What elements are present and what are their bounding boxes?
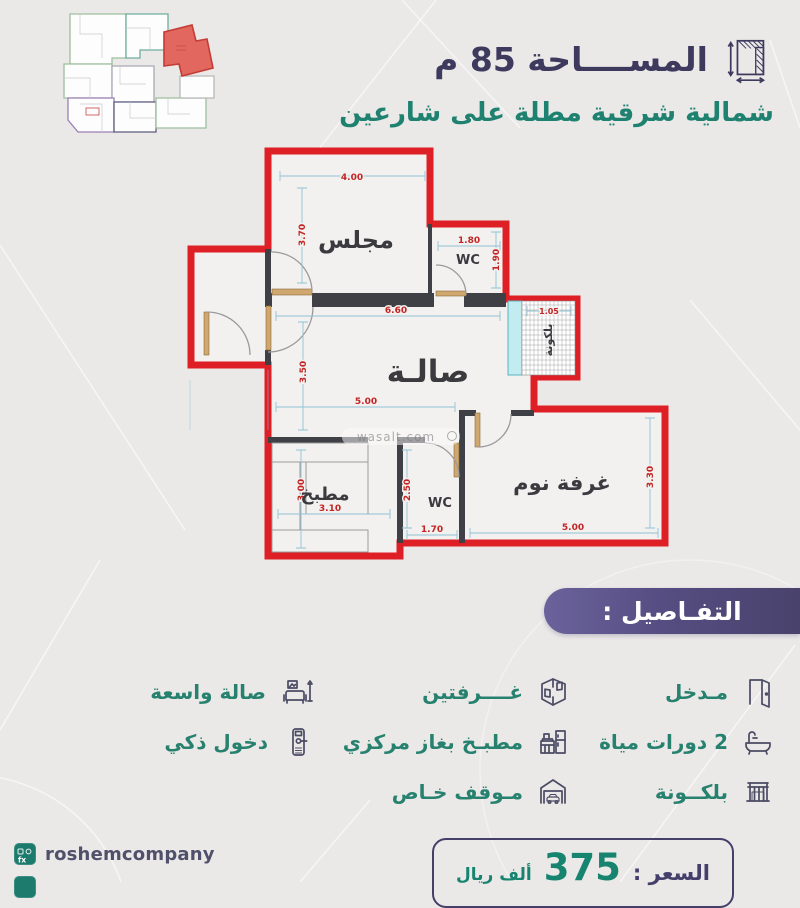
svg-text:صالـة: صالـة: [387, 354, 470, 390]
watermark: wasalt.com: [342, 428, 460, 445]
svg-text:غرفة نوم: غرفة نوم: [513, 471, 611, 495]
price-box: السعر : 375 ألف ريال: [432, 838, 734, 908]
feature-private-parking: مـوقف خـاص: [325, 772, 570, 812]
feature-label: مـوقف خـاص: [392, 780, 523, 804]
svg-text:fx: fx: [18, 856, 26, 865]
feature-label: 2 دورات مياة: [599, 730, 728, 754]
bathtub-icon: [741, 725, 775, 759]
svg-text:5.00: 5.00: [562, 523, 584, 533]
svg-text:wasalt.com: wasalt.com: [357, 430, 435, 444]
header: المســــاحة 85 م شمالية شرقية مطلة على ش…: [339, 34, 774, 128]
feature-kitchen: مطبـخ بغاز مركزي: [325, 722, 570, 762]
svg-text:3.70: 3.70: [298, 224, 308, 246]
svg-text:1.05: 1.05: [539, 307, 559, 316]
balcony-window: [508, 301, 522, 375]
feature-label: بلكــونة: [655, 780, 728, 804]
svg-text:1.80: 1.80: [458, 236, 480, 246]
garage-icon: [536, 775, 570, 809]
social-icon: fx: [14, 843, 36, 865]
feature-two-rooms: غــــرفتين: [325, 672, 570, 712]
svg-text:WC: WC: [456, 253, 480, 268]
price-label: السعر :: [633, 861, 710, 885]
orientation-subtitle: شمالية شرقية مطلة على شارعين: [339, 98, 774, 128]
svg-text:مجلس: مجلس: [318, 226, 394, 254]
feature-label: صالة واسعة: [150, 680, 266, 704]
feature-label: دخول ذكي: [164, 730, 268, 754]
svg-text:3.30: 3.30: [646, 466, 656, 488]
area-dimension-icon: [724, 34, 774, 86]
smart-lock-icon: [281, 725, 315, 759]
svg-text:WC: WC: [428, 496, 452, 511]
svg-text:5.00: 5.00: [355, 397, 377, 407]
feature-spacious-hall: صالة واسعة: [75, 672, 315, 712]
svg-text:1.90: 1.90: [492, 249, 502, 271]
svg-text:1.70: 1.70: [421, 525, 443, 535]
feature-label: غــــرفتين: [422, 680, 523, 704]
door-icon: [741, 675, 775, 709]
details-banner: التفـاصيل :: [544, 588, 800, 634]
social-handle: roshemcompany: [45, 844, 215, 865]
real-estate-flyer: { "header": { "area_title": "المســــاحة…: [0, 0, 800, 882]
footer-phone-row: [14, 876, 36, 898]
details-banner-label: التفـاصيل :: [602, 597, 741, 626]
price-unit: ألف ريال: [456, 865, 532, 885]
svg-text:6.60: 6.60: [385, 306, 407, 316]
footer-social-row: fx roshemcompany: [14, 843, 215, 865]
svg-text:3.50: 3.50: [299, 361, 309, 383]
kitchen-icon: [536, 725, 570, 759]
balcony-icon: [741, 775, 775, 809]
feature-bathrooms: 2 دورات مياة: [580, 722, 775, 762]
svg-text:3.10: 3.10: [319, 504, 341, 514]
price-value: 375: [544, 849, 621, 886]
feature-entrance: مـدخل: [580, 672, 775, 712]
rooms-icon: [536, 675, 570, 709]
svg-text:4.00: 4.00: [341, 173, 363, 183]
feature-smart-entry: دخول ذكي: [75, 722, 315, 762]
svg-text:مطبخ: مطبخ: [301, 484, 350, 505]
feature-balcony: بلكــونة: [580, 772, 775, 812]
feature-label: مـدخل: [665, 680, 728, 704]
sofa-icon: [279, 675, 315, 709]
svg-text:بلكونة: بلكونة: [542, 324, 555, 357]
area-title: المســــاحة 85 م: [434, 42, 708, 78]
svg-text:2.50: 2.50: [403, 479, 413, 501]
feature-label: مطبـخ بغاز مركزي: [343, 730, 523, 754]
phone-icon: [14, 876, 36, 898]
features-grid: مـدخل غــــرفتين صالة واسعة 2 دو: [0, 672, 800, 812]
